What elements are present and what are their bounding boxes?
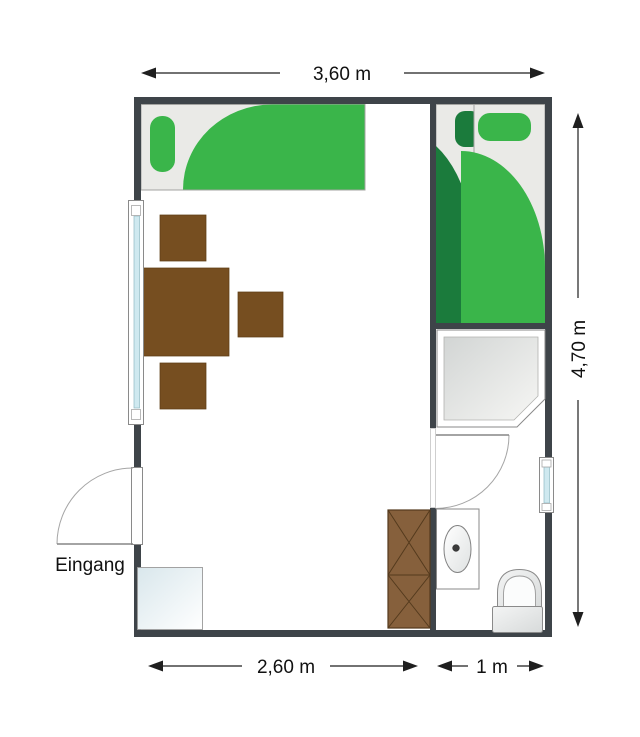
window-left-cap-bottom <box>132 410 141 420</box>
window-left <box>129 201 144 425</box>
wall-bath-lower <box>430 508 436 630</box>
chair-bottom <box>160 363 206 409</box>
dimension-bottom-main-label: 2,60 m <box>257 657 315 678</box>
bed-single-left <box>141 105 365 191</box>
floor-cabinet <box>138 568 203 630</box>
floor-plan: 3,60 m 4,70 m 2,60 m 1 m Eingang <box>0 0 640 737</box>
wall-alcove-left <box>430 104 436 323</box>
arrow-up-icon <box>573 113 584 128</box>
bathroom-door-opening <box>431 429 436 508</box>
wall-left-upper <box>134 97 141 202</box>
dimension-bottom-main: 2,60 m <box>148 657 418 678</box>
arrow-left-icon <box>141 68 156 79</box>
window-right <box>540 458 554 513</box>
dimension-bottom-bath: 1 m <box>437 657 544 678</box>
bathroom-door-swing-arc <box>436 435 510 509</box>
toilet-bowl-inner <box>504 576 536 610</box>
bed-front-pillow <box>478 113 531 141</box>
wall-alcove-bottom <box>430 323 552 329</box>
wall-bath-upper <box>430 329 436 428</box>
bed-front-alcove <box>461 105 545 324</box>
window-right-glass <box>544 467 550 503</box>
sink-drain <box>453 545 460 552</box>
bed-left-pillow <box>150 116 175 172</box>
sink <box>437 509 480 589</box>
shower <box>437 330 545 427</box>
bathroom-door <box>431 429 510 509</box>
arrow-right-icon <box>403 661 418 672</box>
window-right-cap-top <box>542 460 551 467</box>
shower-tray <box>444 337 538 420</box>
wardrobe <box>388 510 430 628</box>
wall-right-lower <box>545 512 552 637</box>
arrow-left-icon <box>437 661 452 672</box>
dimension-right-label: 4,70 m <box>569 320 590 378</box>
dimension-bottom-bath-label: 1 m <box>476 657 508 678</box>
dimension-right: 4,70 m <box>569 113 590 627</box>
dimension-top: 3,60 m <box>141 64 545 85</box>
arrow-down-icon <box>573 612 584 627</box>
wall-left-middle <box>134 423 141 468</box>
dining-table <box>141 268 229 356</box>
entrance-door-swing-arc <box>57 468 133 544</box>
entrance-door-jamb <box>132 468 143 545</box>
wall-right-upper <box>545 97 552 458</box>
wardrobe-body <box>388 510 430 628</box>
wall-bottom <box>134 630 552 637</box>
window-left-cap-top <box>132 206 141 216</box>
toilet-tank <box>493 607 543 633</box>
wall-top <box>134 97 552 104</box>
arrow-right-icon <box>530 68 545 79</box>
arrow-right-icon <box>529 661 544 672</box>
toilet <box>493 570 543 633</box>
window-right-cap-bottom <box>542 504 551 511</box>
arrow-left-icon <box>148 661 163 672</box>
window-left-glass <box>134 216 140 408</box>
entrance-door <box>57 468 143 545</box>
dining-set <box>141 215 283 409</box>
chair-top <box>160 215 206 261</box>
entrance-label: Eingang <box>55 555 125 576</box>
dimension-top-label: 3,60 m <box>313 64 371 85</box>
chair-right <box>238 292 283 337</box>
